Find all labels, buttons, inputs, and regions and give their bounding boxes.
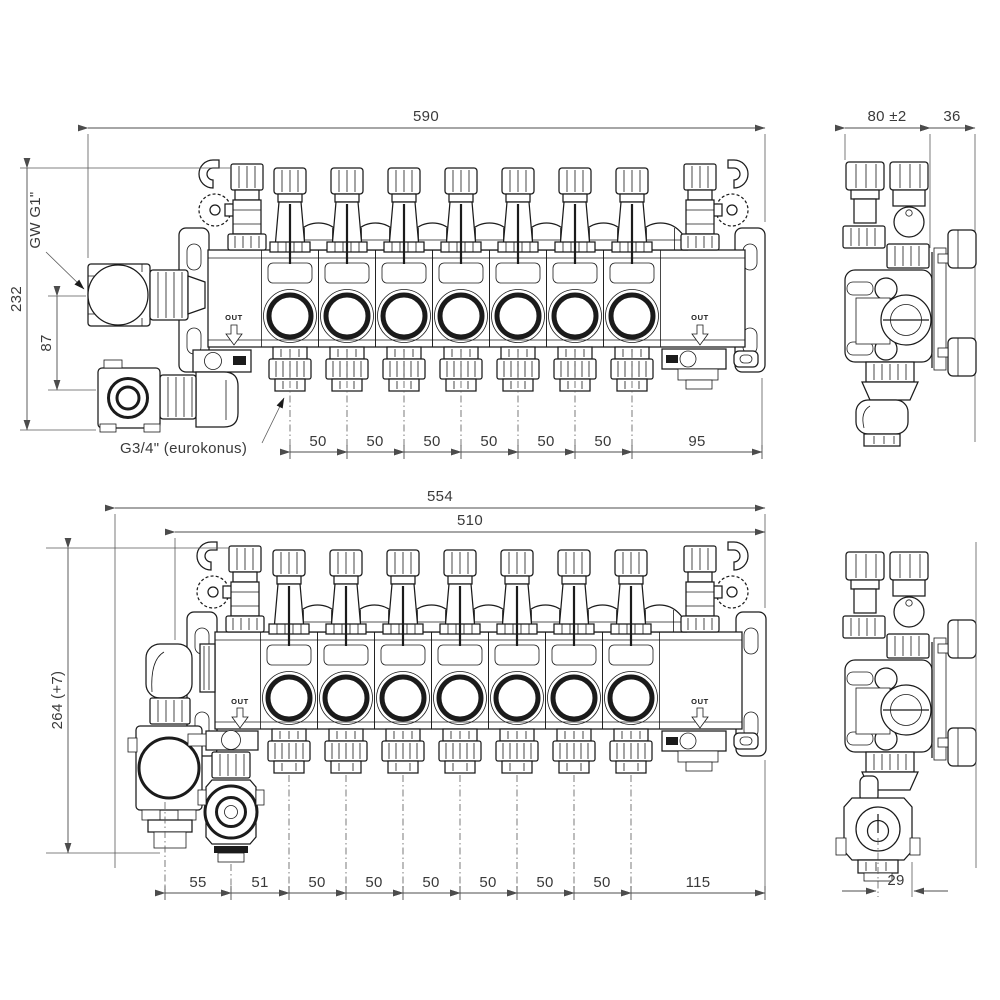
dim-text: 50 xyxy=(537,433,554,450)
dim-text: 50 xyxy=(309,433,326,450)
dim-text: 50 xyxy=(422,874,439,891)
side-view-elbow xyxy=(856,400,908,446)
dim-text: 50 xyxy=(366,433,383,450)
left-drain-piece xyxy=(193,350,251,372)
dim-text: 50 xyxy=(480,433,497,450)
dim-text: 50 xyxy=(423,433,440,450)
dim-text: 55 xyxy=(189,874,206,891)
dim-text: 590 xyxy=(413,108,439,125)
dim-text: 50 xyxy=(593,874,610,891)
dim-text: 51 xyxy=(251,874,268,891)
supply-connection-g1 xyxy=(88,264,205,326)
out-label: OUT xyxy=(225,313,243,322)
out-label: OUT xyxy=(231,697,249,706)
manifold-dimension-drawing: OUT OUT xyxy=(0,0,1000,1000)
svg-text:GW G1": GW G1" xyxy=(27,191,44,248)
dim-text: 554 xyxy=(427,488,453,505)
technical-drawing-page: OUT OUT xyxy=(0,0,1000,1000)
dim-text: 87 xyxy=(38,334,55,351)
dim-text: 264 (+7) xyxy=(49,671,66,730)
dim-text-depth: 80 ±2 xyxy=(868,108,907,125)
dim-text: 510 xyxy=(457,512,483,529)
dim-text: 50 xyxy=(594,433,611,450)
dim-text: 50 xyxy=(308,874,325,891)
svg-text:G3/4" (eurokonus): G3/4" (eurokonus) xyxy=(120,440,247,457)
out-label: OUT xyxy=(691,313,709,322)
dim-text: 95 xyxy=(688,433,705,450)
out-label: OUT xyxy=(691,697,709,706)
dim-text: 232 xyxy=(8,286,25,312)
dim-text: 29 xyxy=(887,872,904,889)
dim-text-bracket: 36 xyxy=(943,108,960,125)
dim-text: 50 xyxy=(365,874,382,891)
dim-text: 115 xyxy=(686,874,711,891)
dim-text: 50 xyxy=(479,874,496,891)
dim-text: 50 xyxy=(536,874,553,891)
